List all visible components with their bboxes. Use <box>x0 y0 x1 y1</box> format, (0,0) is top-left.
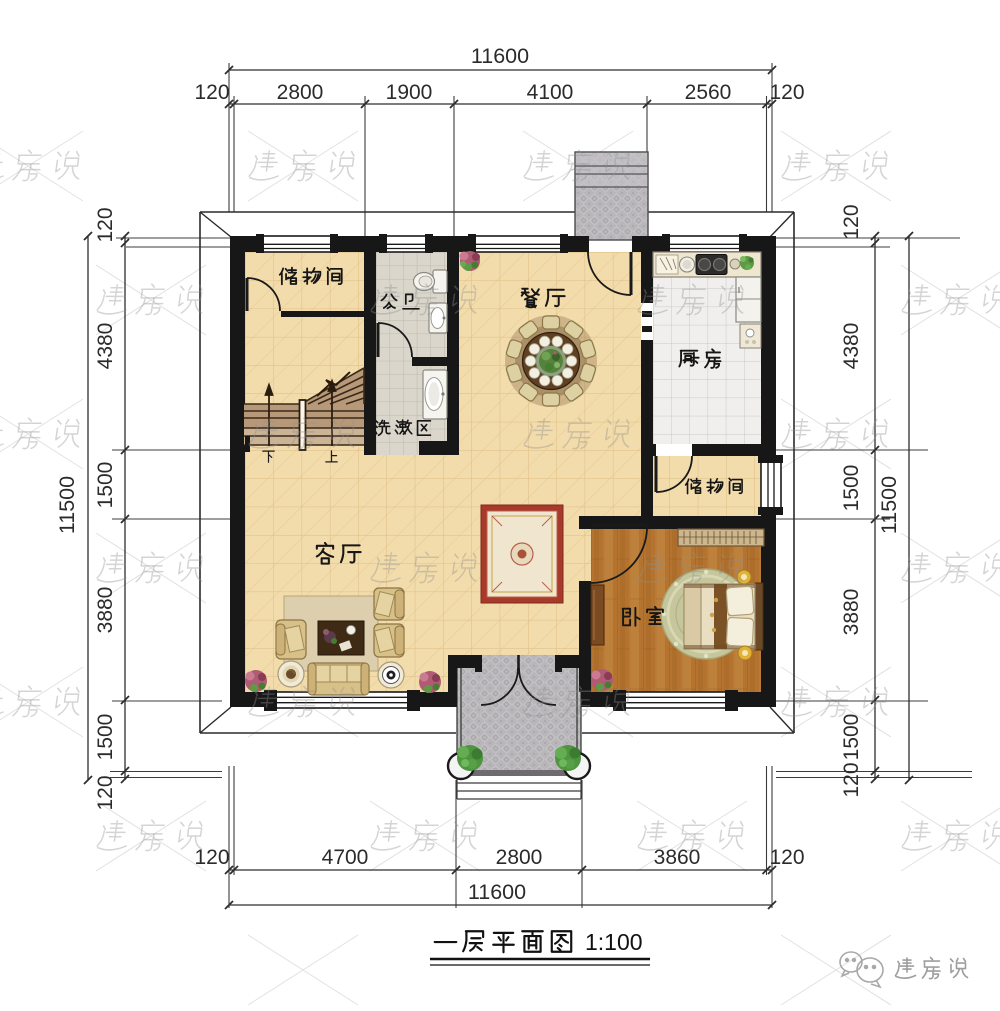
svg-text:120: 120 <box>769 846 804 869</box>
svg-text:3880: 3880 <box>94 587 117 634</box>
svg-text:120: 120 <box>194 846 229 869</box>
svg-text:4380: 4380 <box>840 323 863 370</box>
svg-text:4100: 4100 <box>527 81 574 104</box>
svg-text:120: 120 <box>840 204 863 239</box>
svg-text:4380: 4380 <box>94 323 117 370</box>
svg-text:1500: 1500 <box>94 714 117 761</box>
svg-text:120: 120 <box>94 207 117 242</box>
svg-text:1:100: 1:100 <box>585 929 643 955</box>
svg-text:4700: 4700 <box>322 846 369 869</box>
svg-text:1900: 1900 <box>386 81 433 104</box>
svg-text:2800: 2800 <box>277 81 324 104</box>
svg-text:120: 120 <box>194 81 229 104</box>
svg-text:2800: 2800 <box>496 846 543 869</box>
svg-text:1500: 1500 <box>840 465 863 512</box>
svg-text:2560: 2560 <box>685 81 732 104</box>
svg-text:11500: 11500 <box>55 476 79 534</box>
svg-text:120: 120 <box>769 81 804 104</box>
svg-text:1500: 1500 <box>840 714 863 761</box>
svg-text:3880: 3880 <box>840 589 863 636</box>
svg-text:120: 120 <box>94 775 117 810</box>
svg-text:11600: 11600 <box>468 880 526 904</box>
svg-text:11600: 11600 <box>471 44 529 68</box>
svg-text:1500: 1500 <box>94 462 117 509</box>
svg-text:120: 120 <box>840 762 863 797</box>
svg-text:11500: 11500 <box>877 476 901 534</box>
